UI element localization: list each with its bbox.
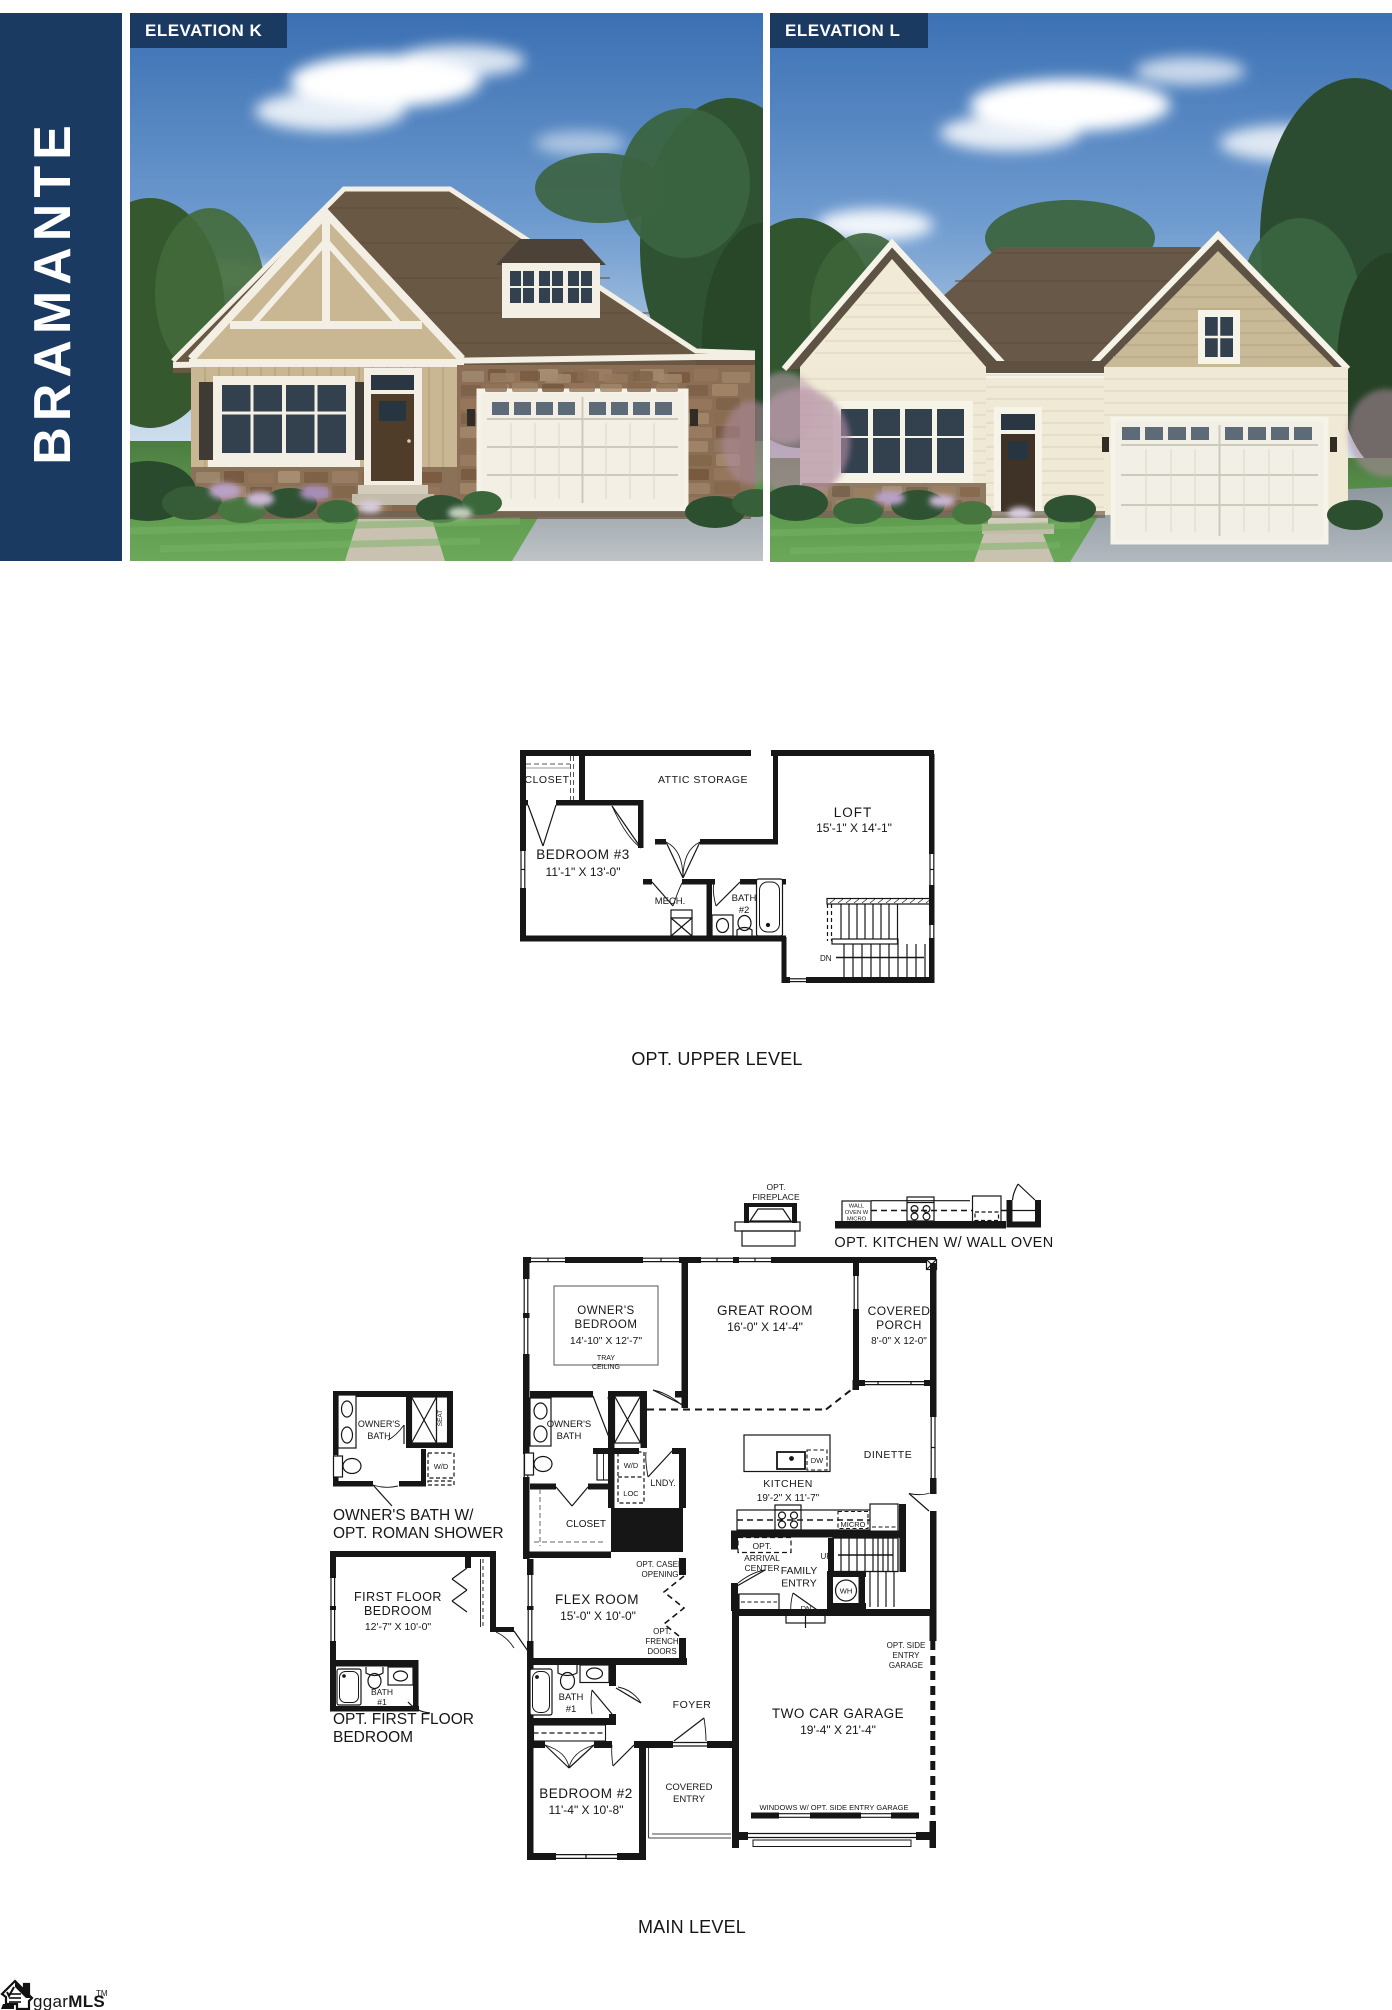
svg-text:LNDY.: LNDY. [650, 1478, 675, 1488]
svg-text:LOC: LOC [623, 1489, 639, 1498]
svg-text:BATH: BATH [559, 1692, 584, 1703]
svg-text:TRAY: TRAY [597, 1355, 615, 1362]
svg-text:MECH.: MECH. [655, 896, 686, 907]
svg-text:FOYER: FOYER [673, 1699, 712, 1711]
svg-text:FRENCH: FRENCH [645, 1637, 679, 1646]
svg-text:BATH: BATH [557, 1431, 582, 1442]
svg-text:BEDROOM: BEDROOM [333, 1729, 413, 1746]
svg-text:ENTRY: ENTRY [781, 1578, 816, 1590]
svg-text:FAMILY: FAMILY [781, 1565, 818, 1577]
svg-text:OPT. SIDE: OPT. SIDE [887, 1641, 926, 1650]
svg-text:BEDROOM #2: BEDROOM #2 [539, 1786, 633, 1801]
svg-text:OWNER'S: OWNER'S [547, 1419, 592, 1430]
svg-text:LOFT: LOFT [834, 805, 873, 820]
svg-text:WH: WH [840, 1587, 853, 1596]
svg-text:DN: DN [820, 954, 832, 963]
svg-text:12'-7" X 10'-0": 12'-7" X 10'-0" [365, 1621, 432, 1633]
svg-text:ARRIVAL: ARRIVAL [744, 1553, 780, 1563]
svg-text:OPT. ROMAN SHOWER: OPT. ROMAN SHOWER [333, 1525, 504, 1542]
svg-text:OPT. CASED: OPT. CASED [636, 1560, 684, 1569]
svg-text:ENTRY: ENTRY [673, 1794, 706, 1805]
svg-text:14'-10" X 12'-7": 14'-10" X 12'-7" [570, 1335, 642, 1347]
svg-text:19'-2" X 11'-7": 19'-2" X 11'-7" [757, 1493, 820, 1504]
svg-text:OPT. FIRST FLOOR: OPT. FIRST FLOOR [333, 1711, 474, 1728]
svg-text:#1: #1 [377, 1697, 387, 1707]
svg-text:OPT.: OPT. [653, 1627, 671, 1636]
svg-text:CLOSET: CLOSET [566, 1519, 606, 1530]
svg-text:DINETTE: DINETTE [864, 1449, 912, 1461]
svg-text:OPT.: OPT. [767, 1182, 786, 1192]
svg-text:BATH: BATH [732, 893, 757, 904]
svg-text:TM: TM [96, 1989, 108, 1998]
svg-text:OWNER'S: OWNER'S [577, 1305, 634, 1317]
svg-text:W/D: W/D [434, 1462, 449, 1471]
svg-text:CEILING: CEILING [592, 1364, 620, 1371]
svg-text:FIREPLACE: FIREPLACE [752, 1192, 800, 1202]
svg-text:OPT. KITCHEN W/ WALL OVEN: OPT. KITCHEN W/ WALL OVEN [834, 1235, 1053, 1251]
svg-text:KITCHEN: KITCHEN [763, 1478, 813, 1490]
svg-text:OPT.: OPT. [753, 1541, 772, 1551]
svg-text:OWNER'S BATH W/: OWNER'S BATH W/ [333, 1507, 474, 1524]
svg-text:BEDROOM: BEDROOM [575, 1319, 638, 1331]
svg-text:WALL: WALL [849, 1204, 865, 1210]
svg-text:15'-1" X 14'-1": 15'-1" X 14'-1" [816, 821, 892, 835]
svg-text:OPT. UPPER LEVEL: OPT. UPPER LEVEL [631, 1049, 802, 1069]
svg-text:ggarMLS: ggarMLS [33, 1992, 105, 2010]
svg-text:#1: #1 [566, 1704, 577, 1715]
svg-text:CLOSET: CLOSET [524, 774, 569, 786]
svg-text:BEDROOM #3: BEDROOM #3 [536, 847, 630, 862]
svg-text:MAIN LEVEL: MAIN LEVEL [638, 1917, 746, 1937]
svg-text:DW: DW [811, 1456, 824, 1465]
svg-text:BATH: BATH [371, 1687, 393, 1697]
svg-text:PORCH: PORCH [876, 1318, 922, 1332]
svg-text:GREAT ROOM: GREAT ROOM [717, 1303, 813, 1318]
svg-text:15'-0" X 10'-0": 15'-0" X 10'-0" [560, 1609, 636, 1623]
svg-text:8'-0" X 12-0": 8'-0" X 12-0" [871, 1336, 927, 1347]
svg-text:OWNER'S: OWNER'S [358, 1419, 400, 1429]
svg-text:WINDOWS W/ OPT. SIDE ENTRY GAR: WINDOWS W/ OPT. SIDE ENTRY GARAGE [760, 1803, 909, 1812]
svg-text:BATH: BATH [367, 1431, 390, 1441]
svg-text:FIRST FLOOR: FIRST FLOOR [354, 1590, 442, 1604]
svg-text:11'-4" X 10'-8": 11'-4" X 10'-8" [549, 1803, 624, 1817]
svg-text:COVERED: COVERED [868, 1304, 931, 1318]
svg-text:19'-4" X 21'-4": 19'-4" X 21'-4" [800, 1723, 876, 1737]
svg-text:MICRO: MICRO [841, 1520, 866, 1529]
svg-text:SEAT: SEAT [437, 1410, 444, 1427]
svg-text:BEDROOM: BEDROOM [364, 1604, 432, 1618]
svg-text:COVERED: COVERED [666, 1782, 713, 1793]
svg-text:11'-1" X 13'-0": 11'-1" X 13'-0" [546, 865, 621, 879]
svg-text:FLEX ROOM: FLEX ROOM [555, 1592, 639, 1607]
svg-text:GARAGE: GARAGE [889, 1661, 923, 1670]
svg-text:W/D: W/D [624, 1461, 639, 1470]
svg-text:OVEN W: OVEN W [845, 1210, 869, 1216]
svg-text:ENTRY: ENTRY [893, 1651, 921, 1660]
svg-text:OPENING: OPENING [642, 1570, 679, 1579]
svg-text:ATTIC STORAGE: ATTIC STORAGE [658, 774, 748, 786]
svg-text:DOORS: DOORS [647, 1647, 676, 1656]
svg-text:TWO CAR GARAGE: TWO CAR GARAGE [772, 1706, 904, 1721]
svg-text:16'-0" X 14'-4": 16'-0" X 14'-4" [727, 1320, 803, 1334]
svg-text:#2: #2 [739, 905, 750, 916]
